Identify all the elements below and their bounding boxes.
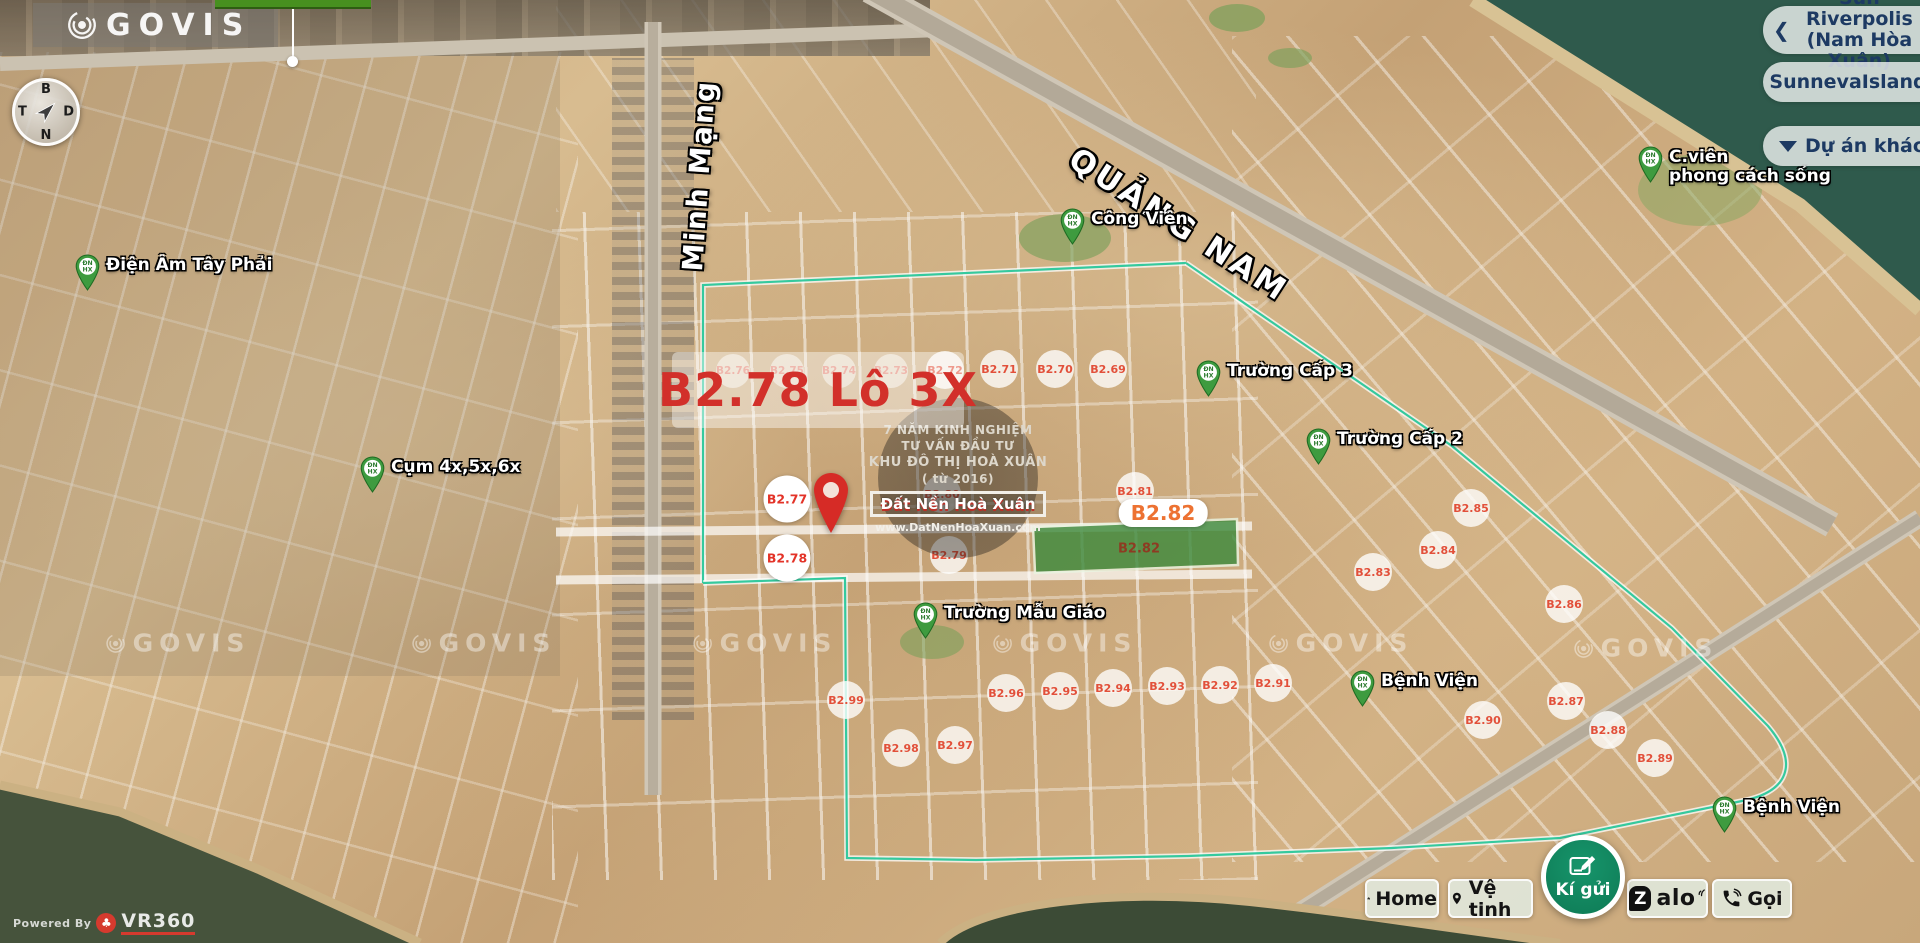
pin-text-bottom: HX (1204, 373, 1214, 380)
golf-green-2 (1268, 48, 1312, 68)
govis-logo-icon (1574, 638, 1594, 658)
poi-marker-0[interactable]: ĐNHXĐiện Âm Tây Phải (74, 254, 272, 291)
compass-east-label: D (63, 105, 74, 120)
poi-label: Trường Cấp 2 (1337, 430, 1463, 449)
poi-marker-3[interactable]: ĐNHXTrường Cấp 3 (1195, 360, 1353, 397)
zalo-button[interactable]: Z alo (1627, 879, 1708, 918)
golf-green-1 (1209, 4, 1265, 32)
lot-badge-b2-98[interactable]: B2.98 (882, 729, 920, 767)
phone-icon (1721, 888, 1742, 909)
lot-highlight-box-b2-82[interactable]: B2.82 (1119, 499, 1208, 527)
govis-watermark-text: GOVIS (720, 629, 838, 658)
govis-logo-icon (67, 10, 97, 40)
powered-by-label: Powered By (13, 917, 91, 930)
satellite-button[interactable]: Vệ tinh (1448, 879, 1533, 918)
compass[interactable]: B N T D (12, 78, 80, 146)
lot-badge-b2-94[interactable]: B2.94 (1094, 669, 1132, 707)
lot-badge-b2-92[interactable]: B2.92 (1201, 666, 1239, 704)
dn-hx-pin-icon: ĐNHX (1349, 670, 1376, 707)
map-pin-icon (1450, 888, 1464, 909)
zalo-icon: Z (1629, 886, 1651, 911)
home-label: Home (1375, 888, 1437, 910)
poi-marker-4[interactable]: ĐNHXTrường Cấp 2 (1305, 428, 1463, 465)
dn-hx-pin-icon: ĐNHX (74, 254, 101, 291)
lot-badge-b2-96[interactable]: B2.96 (987, 674, 1025, 712)
poi-label: Trường Cấp 3 (1227, 362, 1353, 381)
pin-text-bottom: HX (368, 469, 378, 476)
poi-label: Công Viên (1091, 210, 1188, 229)
govis-logo-icon (106, 633, 126, 653)
lot-badge-b2-71[interactable]: B2.71 (980, 350, 1018, 388)
note-pencil-icon (1569, 854, 1597, 878)
lot-badge-b2-86[interactable]: B2.86 (1545, 585, 1583, 623)
govis-logo-text: GOVIS (106, 8, 251, 43)
info-line-3: KHU ĐÔ THỊ HOÀ XUÂN (869, 455, 1047, 470)
dn-hx-pin-icon: ĐNHX (1637, 146, 1664, 183)
dn-hx-pin-icon: ĐNHX (1059, 208, 1086, 245)
compass-north-label: B (41, 82, 51, 97)
lot-badge-b2-70[interactable]: B2.70 (1036, 350, 1074, 388)
pin-text-bottom: HX (1646, 159, 1656, 166)
govis-watermark-text: GOVIS (1296, 629, 1414, 658)
agency-website: www.DatNenHoaXuan.com (875, 521, 1041, 534)
govis-logo-icon (412, 633, 432, 653)
compass-west-label: T (18, 105, 27, 120)
project-current-label: Sun Riverpolis (Nam Hòa Xuân) (1794, 0, 1920, 72)
lot-badge-b2-95[interactable]: B2.95 (1041, 672, 1079, 710)
lot-badge-b2-93[interactable]: B2.93 (1148, 667, 1186, 705)
panel-more-projects[interactable]: Dự án khác (1763, 126, 1920, 166)
lot-green-label-b2-82: B2.82 (1118, 542, 1160, 557)
lot-badge-b2-69[interactable]: B2.69 (1089, 350, 1127, 388)
govis-watermark: GOVIS (1574, 634, 1719, 663)
call-button[interactable]: Gọi (1712, 879, 1792, 918)
pin-text-bottom: HX (1314, 441, 1324, 448)
lot-badge-b2-91[interactable]: B2.91 (1254, 664, 1292, 702)
leader-line (292, 9, 294, 58)
street-row-2 (556, 574, 1252, 580)
powered-by: Powered By ♣ VR360 (13, 912, 195, 935)
compass-needle-icon (31, 97, 61, 127)
more-projects-label: Dự án khác (1805, 136, 1920, 157)
selected-lot-title-band: B2.78 Lô 3X (672, 352, 964, 428)
info-line-2: TƯ VẤN ĐẦU TƯ (901, 439, 1014, 453)
poi-label: Trường Mẫu Giáo (944, 604, 1105, 623)
dn-hx-pin-icon: ĐNHX (1305, 428, 1332, 465)
poi-label: Bệnh Viện (1743, 798, 1840, 817)
map-app: GOVISGOVISGOVISGOVISGOVISGOVIS GOVIS B N… (0, 0, 1920, 943)
poi-marker-2[interactable]: ĐNHXCông Viên (1059, 208, 1188, 245)
pin-text-bottom: HX (1720, 809, 1730, 816)
govis-watermark-text: GOVIS (1601, 634, 1719, 663)
poi-label: Bệnh Viện (1381, 672, 1478, 691)
vr360-logo-icon: ♣ (96, 913, 116, 933)
govis-watermark-text: GOVIS (133, 629, 251, 658)
home-icon (1367, 888, 1370, 909)
chevron-left-icon[interactable]: ❮ (1773, 18, 1790, 42)
pin-text-bottom: HX (83, 267, 93, 274)
govis-logo-icon (693, 633, 713, 653)
govis-logo-plate: GOVIS (33, 3, 278, 47)
dn-hx-pin-icon: ĐNHX (912, 602, 939, 639)
cutoff-green-label (215, 0, 371, 9)
compass-south-label: N (41, 128, 52, 143)
pin-text-bottom: HX (921, 615, 931, 622)
info-line-4: ( từ 2016) (922, 472, 994, 486)
submit-label: Kí gửi (1555, 880, 1610, 900)
lot-badge-b2-84[interactable]: B2.84 (1419, 531, 1457, 569)
agency-brand-box: Đất Nền Hoà Xuân (870, 491, 1047, 517)
dn-hx-pin-icon: ĐNHX (1711, 796, 1738, 833)
project-alt-label: SunnevaIsland (1759, 72, 1920, 93)
lot-badge-b2-87[interactable]: B2.87 (1547, 682, 1585, 720)
govis-watermark: GOVIS (106, 629, 251, 658)
lot-badge-b2-78[interactable]: B2.78 (764, 535, 811, 582)
vr360-brand: VR360 (121, 912, 195, 935)
lot-badge-b2-83[interactable]: B2.83 (1354, 553, 1392, 591)
signal-waves-icon (1696, 886, 1706, 898)
lot-badge-b2-77[interactable]: B2.77 (764, 476, 811, 523)
satellite-label: Vệ tinh (1469, 877, 1531, 921)
pin-text-bottom: HX (1358, 683, 1368, 690)
selected-lot-pin[interactable] (812, 472, 850, 534)
poi-label: Điện Âm Tây Phải (106, 256, 272, 275)
panel-project-alt[interactable]: SunnevaIsland (1763, 62, 1920, 102)
govis-watermark-text: GOVIS (439, 629, 557, 658)
lot-badge-b2-85[interactable]: B2.85 (1452, 489, 1490, 527)
govis-logo-icon (1269, 633, 1289, 653)
zalo-label: alo (1656, 886, 1695, 911)
lot-badge-b2-99[interactable]: B2.99 (827, 681, 865, 719)
poi-marker-6[interactable]: ĐNHXBệnh Viện (1349, 670, 1478, 707)
panel-project-current[interactable]: ❮ Sun Riverpolis (Nam Hòa Xuân) (1763, 6, 1920, 54)
selected-lot-title: B2.78 Lô 3X (658, 363, 978, 417)
dn-hx-pin-icon: ĐNHX (1195, 360, 1222, 397)
govis-watermark: GOVIS (412, 629, 557, 658)
call-label: Gọi (1747, 888, 1782, 910)
home-button[interactable]: Home (1365, 879, 1439, 918)
pin-text-bottom: HX (1068, 221, 1078, 228)
submit-button[interactable]: Kí gửi (1541, 835, 1625, 919)
lot-badge-b2-97[interactable]: B2.97 (936, 726, 974, 764)
govis-watermark: GOVIS (693, 629, 838, 658)
lot-badge-b2-89[interactable]: B2.89 (1636, 739, 1674, 777)
poi-marker-1[interactable]: ĐNHXCụm 4x,5x,6x (359, 456, 521, 493)
poi-marker-5[interactable]: ĐNHXTrường Mẫu Giáo (912, 602, 1105, 639)
lot-badge-b2-88[interactable]: B2.88 (1589, 711, 1627, 749)
govis-watermark: GOVIS (1269, 629, 1414, 658)
poi-label: Cụm 4x,5x,6x (391, 458, 521, 477)
leader-dot (287, 56, 298, 67)
poi-marker-7[interactable]: ĐNHXBệnh Viện (1711, 796, 1840, 833)
chevron-down-icon (1779, 141, 1797, 152)
dn-hx-pin-icon: ĐNHX (359, 456, 386, 493)
